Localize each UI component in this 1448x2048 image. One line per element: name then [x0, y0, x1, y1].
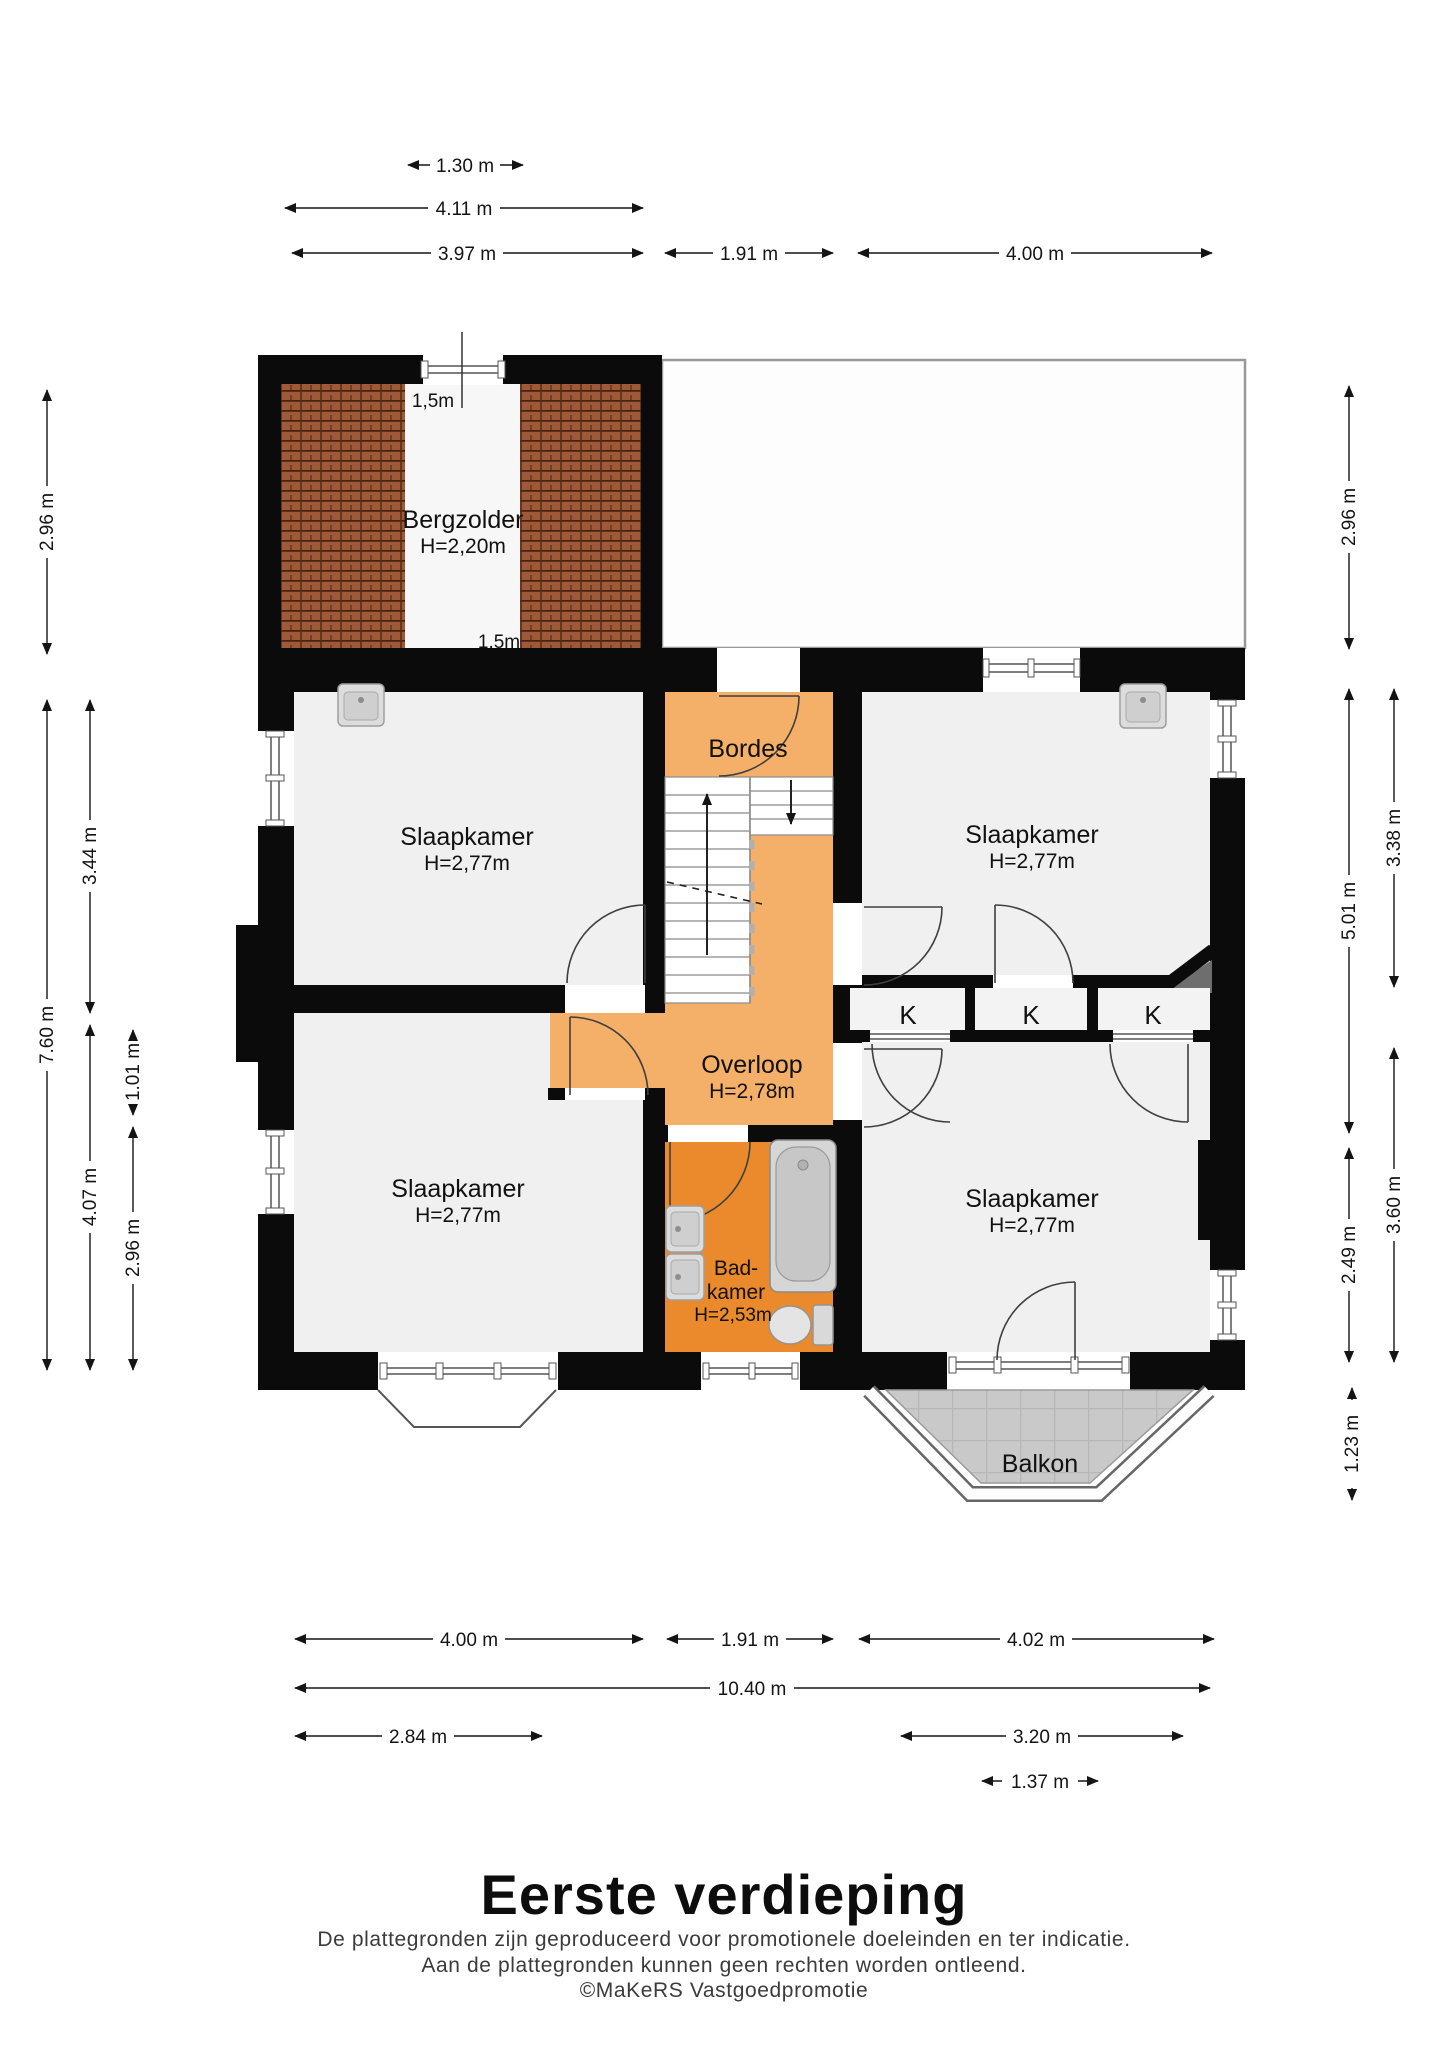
dim-label: 1.01 m [123, 1043, 144, 1101]
badkamer-height: H=2,53m [694, 1305, 772, 1326]
dim-label: 4.00 m [440, 1630, 498, 1651]
dim-label: 1.91 m [720, 244, 778, 265]
wall-closet-divider2 [1087, 975, 1098, 1042]
bergzolder-height-label: H=2,20m [420, 535, 506, 558]
bergzolder-window [421, 355, 505, 385]
flat-roof-area [662, 360, 1245, 648]
dim-left-7-60: 7.60 m [37, 700, 58, 1370]
badkamer-label-line2: kamer [707, 1281, 765, 1304]
dim-label: 3.97 m [438, 244, 496, 265]
overloop-alcove-floor [550, 1013, 665, 1088]
disclaimer-line-2: Aan de plattegronden kunnen geen rechten… [0, 1954, 1448, 1978]
bergzolder-room: 1,5m Bergzolder H=2,20m 1,5m [258, 332, 662, 692]
floorplan-page: 1,5m Bergzolder H=2,20m 1,5m [0, 0, 1448, 2048]
dim-right-2-49: 2.49 m [1339, 1148, 1360, 1362]
wall-closet-divider1 [965, 975, 975, 1042]
dim-left-2-96-top: 2.96 m [37, 390, 58, 654]
dim-label: 1.23 m [1342, 1415, 1363, 1473]
bedroom-topright-label: Slaapkamer [965, 821, 1098, 849]
dim-label: 3.44 m [80, 827, 101, 885]
overloop-height: H=2,78m [709, 1080, 795, 1103]
bedroom-topleft-label: Slaapkamer [400, 823, 533, 851]
dim-right-1-23: 1.23 m [1342, 1388, 1363, 1500]
sink-bedroom-topleft [338, 684, 384, 726]
dim-right-5-01: 5.01 m [1339, 689, 1360, 1133]
dim-right-3-60: 3.60 m [1384, 1048, 1405, 1362]
door-gap-bedroom-topright [833, 903, 862, 985]
window-right-top [1210, 700, 1245, 778]
badkamer-sink-2 [666, 1254, 704, 1300]
dim-left-2-96-bottom: 2.96 m [123, 1127, 144, 1370]
window-left-top [258, 731, 294, 826]
dim-bottom-4-02: 4.02 m [859, 1630, 1214, 1651]
dim-label: 3.38 m [1384, 809, 1405, 867]
sink-bedroom-topright [1120, 684, 1166, 728]
dim-label: 2.96 m [1339, 488, 1360, 546]
dim-label: 4.00 m [1006, 244, 1064, 265]
bay-window [378, 1352, 558, 1427]
dim-right-3-38: 3.38 m [1384, 689, 1405, 987]
dim-left-4-07: 4.07 m [80, 1025, 101, 1370]
dim-label: 2.84 m [389, 1727, 447, 1748]
floorplan-drawing: 1,5m Bergzolder H=2,20m 1,5m [0, 0, 1448, 2048]
badkamer-sink-1 [666, 1206, 704, 1252]
dim-top-1-91: 1.91 m [665, 244, 833, 265]
door-gap-bedroom-bottomleft [565, 1088, 645, 1100]
dim-label: 1.37 m [1011, 1772, 1069, 1793]
dim-label: 10.40 m [718, 1679, 787, 1700]
dim-bottom-1-37: 1.37 m [982, 1772, 1098, 1793]
bedroom-bottomright-height: H=2,77m [989, 1214, 1075, 1237]
bergzolder-clearance-top-label: 1,5m [412, 391, 454, 412]
dim-top-1-30: 1.30 m [408, 156, 523, 177]
disclaimer-line-1: De plattegronden zijn geproduceerd voor … [0, 1928, 1448, 1952]
dim-bottom-3-20: 3.20 m [901, 1727, 1183, 1748]
wall-stairs-left [643, 692, 665, 1013]
dim-label: 4.02 m [1007, 1630, 1065, 1651]
dim-label: 5.01 m [1339, 882, 1360, 940]
dim-bottom-10-40: 10.40 m [295, 1679, 1210, 1700]
closet-3-doors [1113, 1030, 1193, 1042]
closet-2-label: K [1022, 1000, 1040, 1030]
door-gap-bedroom-bottomright [833, 1043, 862, 1120]
door-gap-closet2 [993, 975, 1073, 988]
balkon-label: Balkon [1002, 1450, 1078, 1478]
door-gap-bedroom-topleft [565, 985, 645, 1013]
credit-line: ©MaKeRS Vastgoedpromotie [0, 1979, 1448, 2003]
window-left-bottom [258, 1130, 294, 1214]
window-right-bottom [1210, 1270, 1245, 1340]
dim-bottom-2-84: 2.84 m [295, 1727, 542, 1748]
closet-3-label: K [1144, 1000, 1162, 1030]
dim-label: 2.96 m [37, 493, 58, 551]
bedroom-bottomleft-height: H=2,77m [415, 1204, 501, 1227]
dim-bottom-4-00: 4.00 m [295, 1630, 643, 1651]
dim-bottom-1-91: 1.91 m [667, 1630, 833, 1651]
bathtub [770, 1140, 836, 1292]
dim-label: 1.91 m [721, 1630, 779, 1651]
badkamer-label-line1: Bad- [714, 1257, 758, 1280]
dim-label: 1.30 m [436, 156, 494, 177]
dim-left-3-44: 3.44 m [80, 700, 101, 1013]
door-gap-badkamer [668, 1125, 748, 1142]
dim-label: 3.20 m [1013, 1727, 1071, 1748]
closets: K K K [850, 988, 1210, 1030]
door-gap-bordes-roof [717, 648, 800, 692]
dim-right-2-96: 2.96 m [1339, 386, 1360, 649]
window-badkamer [701, 1352, 800, 1390]
bedroom-bottomright-label: Slaapkamer [965, 1185, 1098, 1213]
roof-tiles-right [520, 384, 641, 655]
dim-label: 7.60 m [37, 1006, 58, 1064]
wall-right-block [1198, 1140, 1245, 1240]
dim-label: 4.07 m [80, 1168, 101, 1226]
dim-left-1-01: 1.01 m [123, 1030, 144, 1115]
window-top-right [983, 648, 1080, 692]
roof-tiles-left [281, 384, 405, 655]
floor-title: Eerste verdieping [0, 1862, 1448, 1927]
bedroom-topright-height: H=2,77m [989, 850, 1075, 873]
closet-1-doors [870, 1030, 950, 1042]
bordes-label: Bordes [708, 735, 787, 763]
dim-top-4-11: 4.11 m [285, 199, 643, 220]
dim-label: 2.49 m [1339, 1226, 1360, 1284]
bedroom-bottomleft-label: Slaapkamer [391, 1175, 524, 1203]
toilet [769, 1305, 833, 1345]
bordes-floor [665, 683, 833, 779]
dim-label: 3.60 m [1384, 1176, 1405, 1234]
dim-top-3-97: 3.97 m [292, 244, 643, 265]
closet-1-label: K [899, 1000, 917, 1030]
bergzolder-label: Bergzolder [403, 506, 524, 534]
dim-label: 2.96 m [123, 1219, 144, 1277]
dim-label: 4.11 m [436, 199, 493, 220]
bedroom-topleft-height: H=2,77m [424, 852, 510, 875]
overloop-label: Overloop [701, 1051, 802, 1079]
stair-walkway-floor [750, 835, 833, 1003]
dim-top-4-00: 4.00 m [858, 244, 1212, 265]
